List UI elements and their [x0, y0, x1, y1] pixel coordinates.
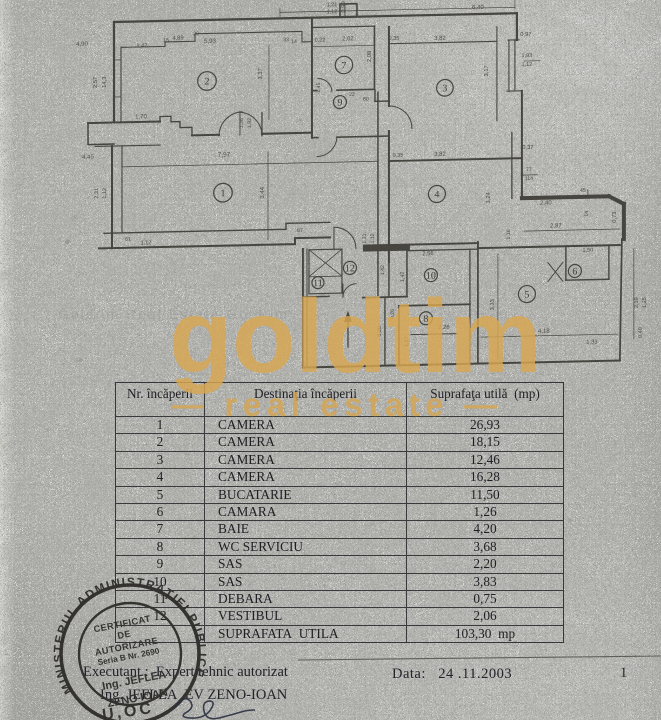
svg-text:3,82: 3,82 [434, 152, 446, 158]
svg-text:1,50: 1,50 [583, 248, 594, 254]
svg-text:14: 14 [291, 39, 297, 45]
svg-text:3,24: 3,24 [486, 191, 492, 203]
svg-text:2,02: 2,02 [342, 36, 353, 42]
svg-text:4,89: 4,89 [172, 35, 183, 41]
svg-text:1,12: 1,12 [102, 188, 108, 199]
svg-text:20: 20 [193, 31, 199, 37]
svg-text:0,35: 0,35 [393, 153, 404, 159]
svg-text:0,90: 0,90 [341, 1, 347, 12]
svg-text:1,92: 1,92 [247, 118, 253, 128]
svg-text:2,31: 2,31 [94, 188, 100, 199]
svg-text:6: 6 [572, 266, 577, 277]
svg-text:3,82: 3,82 [434, 36, 446, 42]
svg-text:1,93: 1,93 [522, 53, 533, 59]
svg-text:7: 7 [341, 60, 346, 71]
svg-text:3,17: 3,17 [484, 65, 490, 76]
svg-text:0,97: 0,97 [520, 32, 531, 38]
svg-text:2,57: 2,57 [93, 77, 99, 88]
svg-text:2,87: 2,87 [550, 223, 562, 229]
svg-text:1,47: 1,47 [136, 43, 147, 49]
svg-text:1,36: 1,36 [239, 118, 245, 128]
svg-text:1,25: 1,25 [642, 297, 648, 308]
svg-text:1,42: 1,42 [380, 265, 386, 275]
svg-text:1,12: 1,12 [327, 9, 338, 15]
svg-text:87: 87 [297, 228, 303, 234]
svg-text:3,37: 3,37 [258, 68, 264, 79]
svg-text:1,70: 1,70 [135, 114, 147, 120]
svg-text:4,45: 4,45 [82, 154, 94, 160]
svg-text:4: 4 [434, 189, 439, 200]
svg-text:0,37: 0,37 [522, 145, 533, 151]
svg-text:0,73: 0,73 [612, 211, 618, 222]
svg-text:3: 3 [442, 83, 447, 94]
svg-text:0,40: 0,40 [638, 327, 644, 338]
svg-text:77: 77 [526, 167, 532, 173]
svg-text:2,56: 2,56 [422, 251, 433, 257]
svg-text:7,97: 7,97 [218, 151, 231, 158]
svg-text:14: 14 [584, 211, 590, 217]
svg-text:2: 2 [204, 76, 209, 87]
svg-text:5,93: 5,93 [204, 38, 217, 45]
svg-text:61: 61 [125, 237, 131, 243]
svg-text:1,12: 1,12 [141, 240, 152, 246]
svg-text:DE: DE [117, 629, 132, 641]
svg-text:22: 22 [349, 92, 355, 98]
svg-text:6,40: 6,40 [472, 5, 484, 11]
svg-text:1,21: 1,21 [327, 2, 338, 8]
svg-text:114: 114 [525, 176, 533, 182]
svg-text:0,35: 0,35 [389, 36, 400, 42]
svg-text:15: 15 [163, 38, 169, 44]
svg-text:9: 9 [337, 98, 342, 109]
svg-text:2,40: 2,40 [540, 200, 552, 206]
svg-text:45: 45 [580, 188, 586, 194]
svg-text:1,12: 1,12 [370, 233, 376, 243]
svg-text:14,3: 14,3 [102, 76, 108, 87]
svg-text:4,90: 4,90 [76, 42, 88, 48]
svg-text:1,16: 1,16 [506, 229, 512, 239]
svg-text:12: 12 [345, 263, 355, 274]
svg-text:1,45: 1,45 [316, 82, 322, 92]
svg-text:1,31: 1,31 [362, 233, 368, 243]
svg-text:60: 60 [363, 96, 369, 102]
svg-text:0,22: 0,22 [315, 37, 326, 43]
svg-text:3,44: 3,44 [260, 186, 266, 198]
svg-text:2,19: 2,19 [634, 297, 640, 308]
svg-text:33: 33 [283, 37, 289, 43]
svg-text:2,08: 2,08 [367, 51, 373, 62]
svg-text:1,12: 1,12 [522, 62, 533, 68]
svg-text:1: 1 [220, 188, 225, 199]
